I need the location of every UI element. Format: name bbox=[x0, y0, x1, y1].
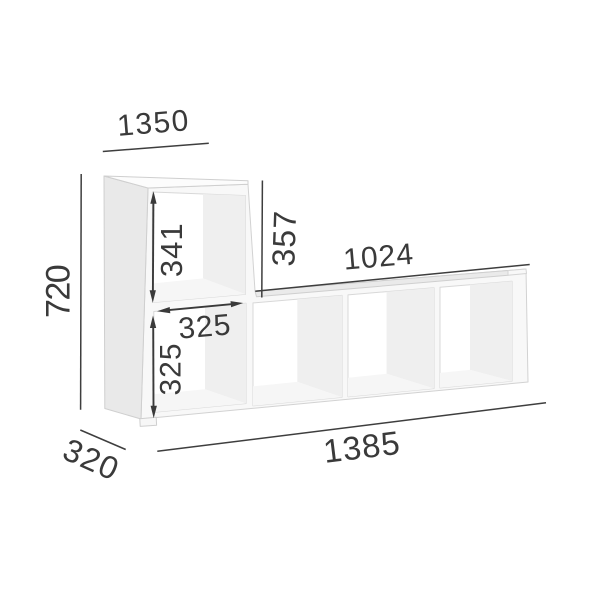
svg-text:341: 341 bbox=[154, 222, 189, 277]
svg-text:1350: 1350 bbox=[116, 104, 191, 143]
svg-text:325: 325 bbox=[177, 308, 233, 345]
svg-text:357: 357 bbox=[265, 209, 303, 267]
svg-text:720: 720 bbox=[40, 265, 78, 318]
svg-text:325: 325 bbox=[155, 342, 188, 395]
svg-text:1024: 1024 bbox=[342, 238, 415, 277]
